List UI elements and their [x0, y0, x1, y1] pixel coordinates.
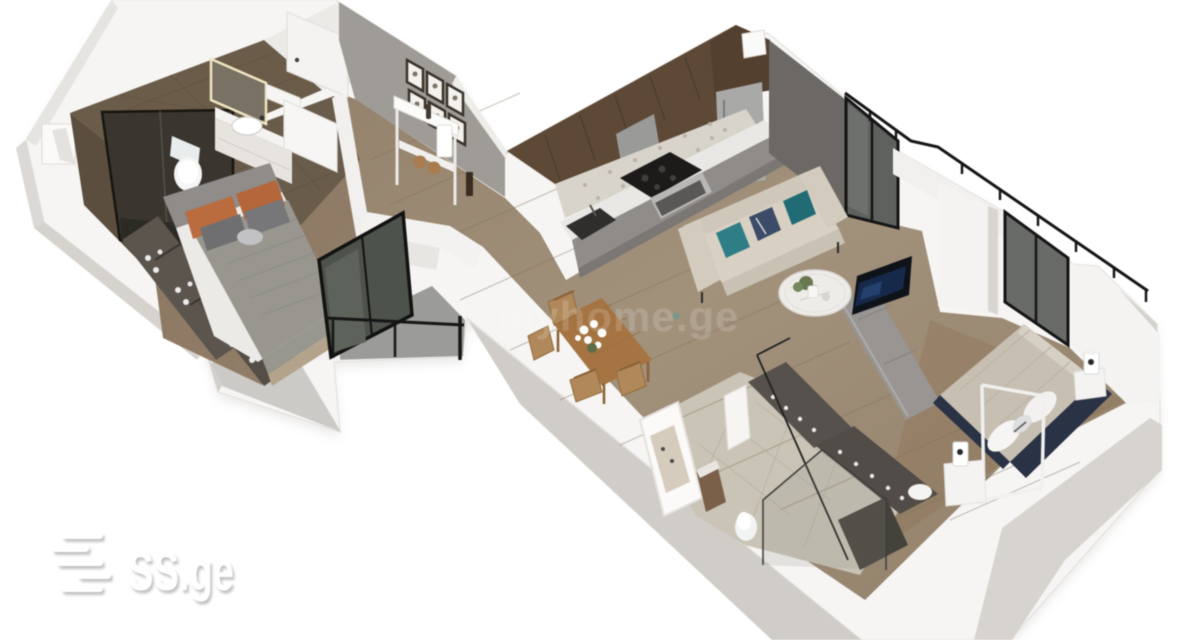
svg-text:SS.ge: SS.ge [128, 540, 234, 602]
svg-text:myhome.ge: myhome.ge [497, 293, 739, 340]
